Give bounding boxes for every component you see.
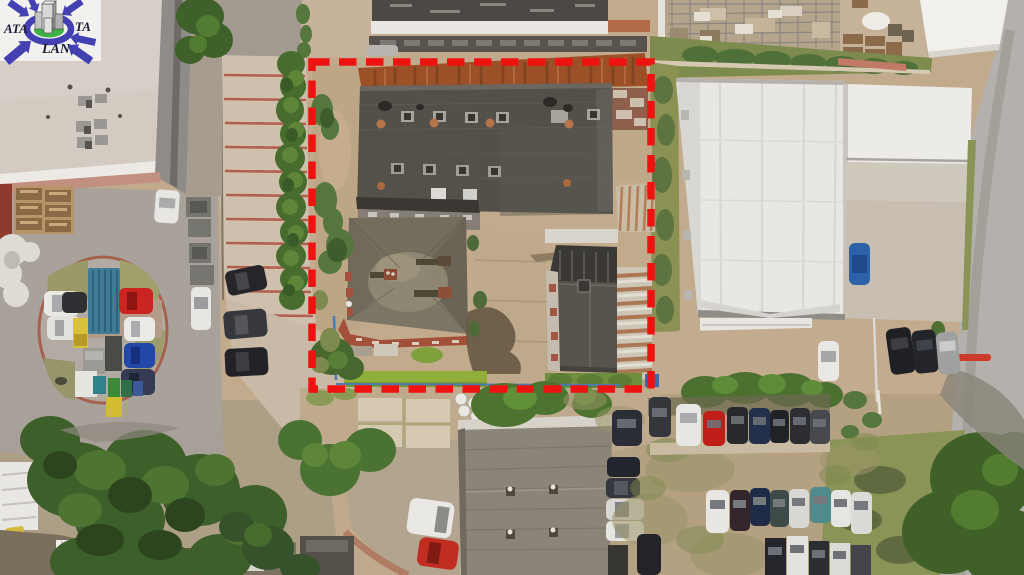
svg-text:TA: TA xyxy=(75,19,91,34)
svg-text:ATA: ATA xyxy=(3,21,28,36)
svg-text:LAN: LAN xyxy=(41,42,71,57)
